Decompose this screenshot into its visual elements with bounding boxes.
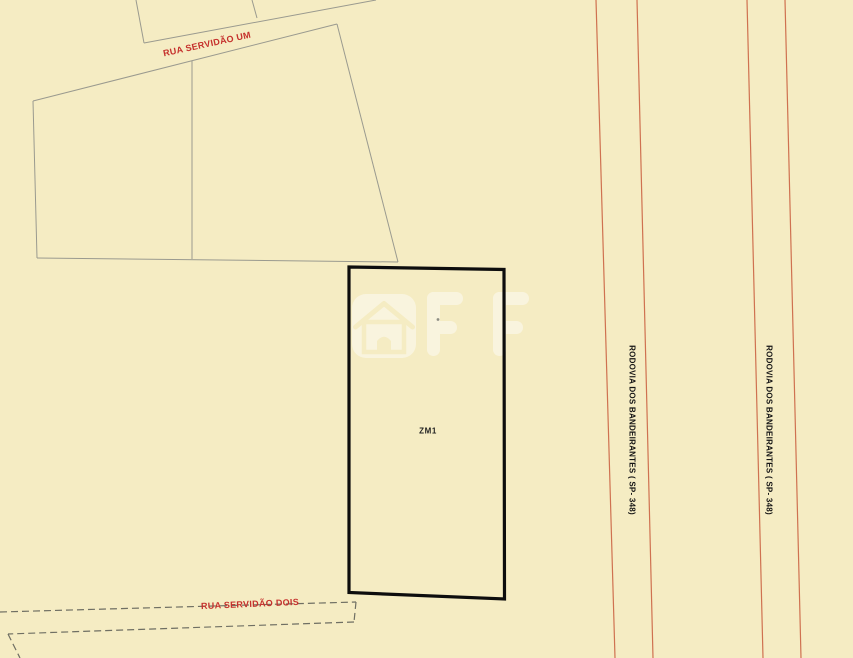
- highway-line: [637, 0, 653, 658]
- map-point-dot: [437, 318, 440, 321]
- dashed-road-line: [8, 634, 20, 658]
- dashed-street-lines: [0, 602, 356, 658]
- street-um-upper-edge: [144, 0, 376, 43]
- parcel-line: [37, 258, 398, 262]
- map-vector-layer: [0, 0, 853, 658]
- highway-line: [785, 0, 801, 658]
- dashed-road-line: [8, 622, 354, 634]
- map-canvas: RUA SERVIDÃO UM RUA SERVIDÃO DOIS RODOVI…: [0, 0, 853, 658]
- parcel-line: [252, 0, 257, 18]
- watermark-letters: [427, 292, 529, 356]
- parcel-line: [33, 101, 37, 258]
- dashed-road-line: [0, 602, 356, 612]
- parcel-boundary-lines: [33, 0, 398, 262]
- highway-line: [596, 0, 615, 658]
- dashed-road-line: [354, 602, 356, 622]
- highway-line: [747, 0, 763, 658]
- highway-lines: [596, 0, 801, 658]
- parcel-line: [337, 24, 398, 262]
- house-in-rounded-square-icon: [352, 294, 416, 358]
- parcel-line: [136, 0, 144, 43]
